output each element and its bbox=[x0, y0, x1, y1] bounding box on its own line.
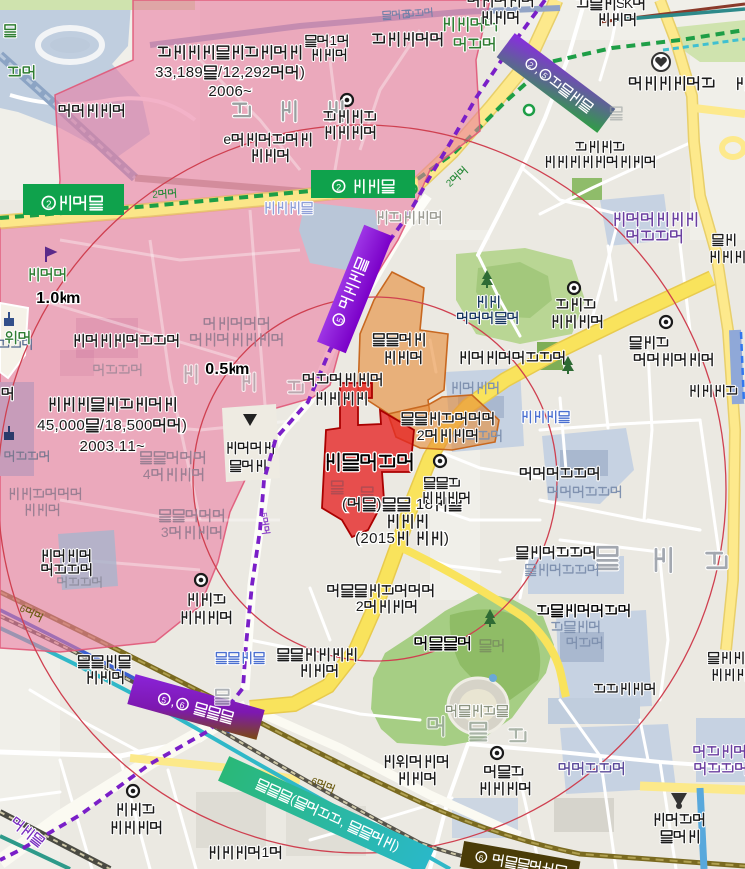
svg-text:0: 0 bbox=[68, 417, 76, 434]
svg-text:.: . bbox=[45, 290, 49, 307]
svg-text:3: 3 bbox=[155, 64, 163, 81]
svg-text:4: 4 bbox=[143, 466, 151, 482]
svg-text:1: 1 bbox=[105, 417, 113, 434]
svg-text:0: 0 bbox=[205, 361, 214, 378]
svg-text:9: 9 bbox=[253, 64, 261, 81]
svg-text:5: 5 bbox=[219, 361, 228, 378]
svg-text:1: 1 bbox=[128, 438, 136, 455]
svg-text:8: 8 bbox=[186, 64, 194, 81]
svg-text:2: 2 bbox=[245, 64, 253, 81]
svg-text:2: 2 bbox=[356, 598, 364, 614]
svg-text:0: 0 bbox=[50, 290, 59, 307]
svg-text:(: ( bbox=[342, 496, 347, 513]
svg-text:1: 1 bbox=[378, 530, 386, 547]
svg-text:0: 0 bbox=[97, 438, 105, 455]
svg-text:3: 3 bbox=[161, 524, 169, 540]
svg-text:0: 0 bbox=[135, 417, 143, 434]
svg-text:5: 5 bbox=[46, 417, 54, 434]
svg-text:e: e bbox=[223, 131, 231, 147]
svg-text:4: 4 bbox=[37, 417, 45, 434]
svg-text:0: 0 bbox=[226, 83, 234, 100]
svg-text:0: 0 bbox=[217, 83, 225, 100]
svg-text:0: 0 bbox=[144, 417, 152, 434]
svg-text:): ) bbox=[182, 417, 187, 434]
svg-text:1: 1 bbox=[119, 438, 127, 455]
svg-text:2: 2 bbox=[46, 200, 52, 211]
svg-text:1: 1 bbox=[36, 290, 45, 307]
svg-text:3: 3 bbox=[164, 64, 172, 81]
svg-text:5: 5 bbox=[127, 417, 135, 434]
svg-text:~: ~ bbox=[243, 83, 252, 100]
svg-text:): ) bbox=[300, 64, 305, 81]
svg-text:.: . bbox=[214, 361, 218, 378]
svg-text:0: 0 bbox=[369, 530, 377, 547]
svg-text:2: 2 bbox=[262, 64, 270, 81]
svg-text:6: 6 bbox=[235, 83, 243, 100]
svg-text:(: ( bbox=[355, 530, 360, 547]
svg-text:2: 2 bbox=[208, 83, 216, 100]
svg-text:m: m bbox=[235, 361, 249, 378]
svg-text:0: 0 bbox=[59, 417, 67, 434]
svg-text:m: m bbox=[66, 290, 80, 307]
svg-text:2: 2 bbox=[231, 64, 239, 81]
svg-text:5: 5 bbox=[387, 530, 395, 547]
svg-text:K: K bbox=[624, 0, 634, 11]
svg-text:3: 3 bbox=[106, 438, 114, 455]
svg-text:1: 1 bbox=[262, 844, 270, 860]
svg-text:): ) bbox=[444, 530, 449, 547]
svg-text:2: 2 bbox=[360, 530, 368, 547]
svg-text:9: 9 bbox=[194, 64, 202, 81]
svg-text:1: 1 bbox=[177, 64, 185, 81]
svg-text:1: 1 bbox=[330, 33, 337, 48]
svg-text:2: 2 bbox=[417, 427, 425, 443]
svg-text:2: 2 bbox=[80, 438, 88, 455]
svg-text:1: 1 bbox=[223, 64, 231, 81]
svg-text:2: 2 bbox=[336, 183, 341, 193]
svg-text:0: 0 bbox=[88, 438, 96, 455]
svg-text:): ) bbox=[377, 496, 382, 513]
svg-text:0: 0 bbox=[76, 417, 84, 434]
svg-text:8: 8 bbox=[113, 417, 121, 434]
